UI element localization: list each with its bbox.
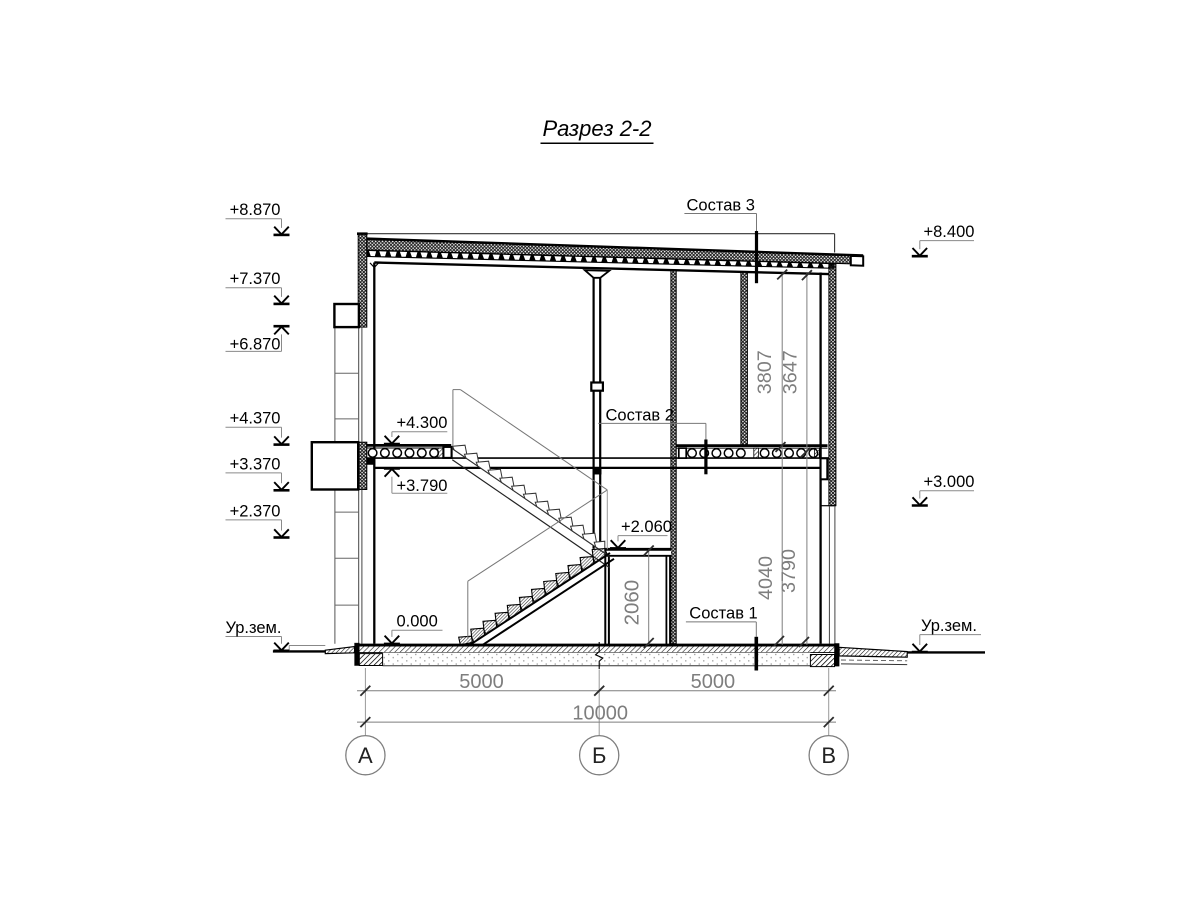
svg-text:Состав 1: Состав 1 bbox=[689, 605, 757, 623]
svg-text:+7.370: +7.370 bbox=[230, 270, 281, 288]
svg-text:Ур.зем.: Ур.зем. bbox=[921, 617, 977, 635]
svg-text:3790: 3790 bbox=[778, 549, 800, 593]
svg-text:5000: 5000 bbox=[691, 671, 736, 693]
svg-text:+2.060: +2.060 bbox=[621, 518, 672, 536]
svg-text:5000: 5000 bbox=[459, 671, 504, 693]
svg-text:Состав 3: Состав 3 bbox=[687, 196, 755, 214]
svg-text:+3.790: +3.790 bbox=[397, 477, 448, 495]
svg-text:Разрез 2-2: Разрез 2-2 bbox=[542, 116, 651, 141]
svg-text:+8.870: +8.870 bbox=[230, 201, 281, 219]
svg-text:В: В bbox=[821, 743, 836, 768]
svg-text:Ур.зем.: Ур.зем. bbox=[226, 619, 282, 637]
svg-text:+4.300: +4.300 bbox=[397, 414, 448, 432]
svg-text:4040: 4040 bbox=[755, 556, 777, 600]
svg-text:Состав 2: Состав 2 bbox=[606, 406, 674, 424]
svg-text:+3.370: +3.370 bbox=[230, 455, 281, 473]
svg-text:3647: 3647 bbox=[780, 350, 802, 394]
svg-text:+8.400: +8.400 bbox=[924, 223, 975, 241]
svg-text:+6.870: +6.870 bbox=[230, 335, 281, 353]
svg-text:Б: Б bbox=[592, 743, 606, 768]
svg-text:А: А bbox=[358, 743, 373, 768]
svg-text:+4.370: +4.370 bbox=[230, 410, 281, 428]
svg-text:0.000: 0.000 bbox=[397, 613, 438, 631]
svg-text:3807: 3807 bbox=[754, 350, 776, 394]
svg-text:2060: 2060 bbox=[621, 580, 644, 626]
svg-text:+2.370: +2.370 bbox=[230, 502, 281, 520]
svg-text:10000: 10000 bbox=[572, 702, 628, 724]
svg-text:+3.000: +3.000 bbox=[924, 473, 975, 491]
